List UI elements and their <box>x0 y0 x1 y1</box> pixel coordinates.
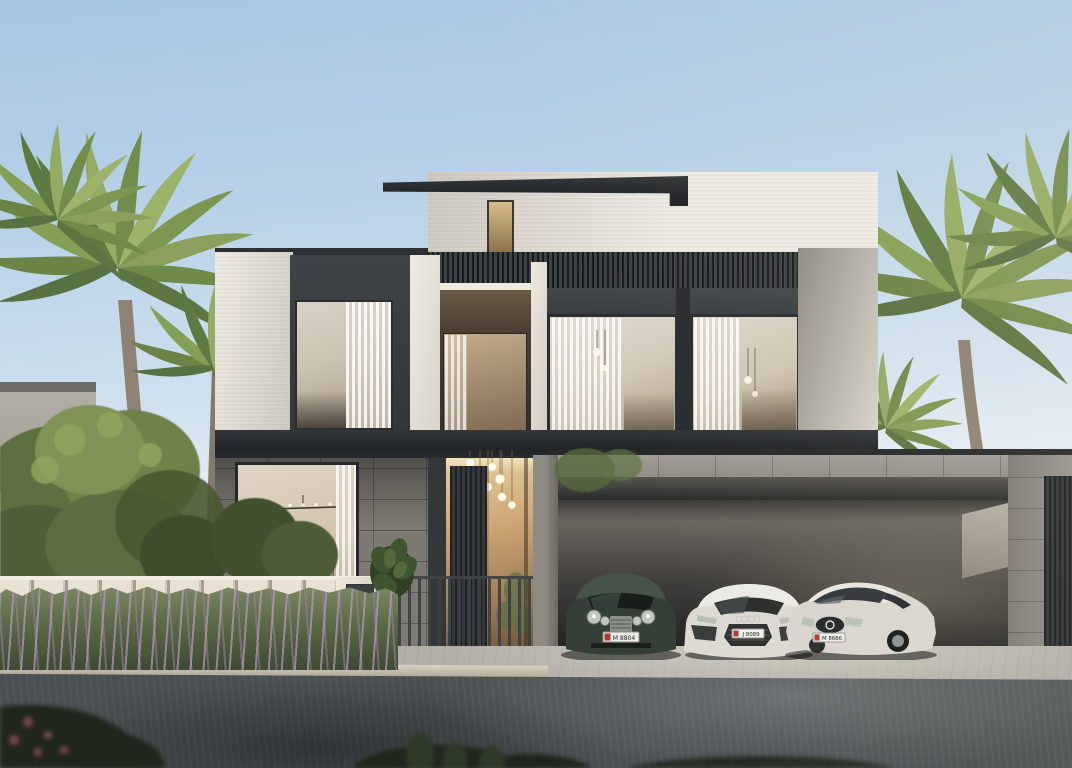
lavender-hedge <box>0 584 398 670</box>
car-white-sedan: M 8686 <box>785 583 937 660</box>
villa-exterior-render: M 8804 J 8089 <box>0 0 1072 768</box>
license-plate-1: M 8804 <box>613 635 636 642</box>
parked-cars: M 8804 J 8089 <box>550 545 970 660</box>
car-dark-green-coupe: M 8804 <box>561 573 681 660</box>
license-plate-2: J 8089 <box>741 632 760 638</box>
license-plate-3: M 8686 <box>822 636 843 642</box>
asphalt-road <box>0 670 1072 768</box>
